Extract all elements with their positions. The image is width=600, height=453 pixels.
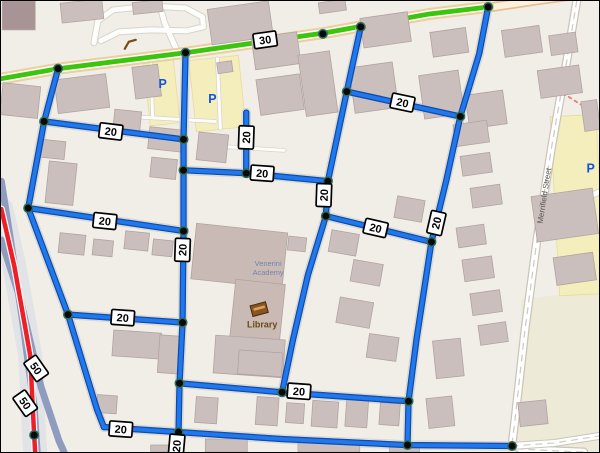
route-node[interactable] [508,442,517,451]
map-text-label: Academy [253,268,284,277]
speed-limit-badge[interactable]: 20 [363,218,389,238]
speed-limit-badge[interactable]: 20 [250,165,274,181]
route-node[interactable] [179,227,188,236]
svg-text:20: 20 [395,96,409,110]
svg-text:20: 20 [114,424,127,437]
route-node[interactable] [64,310,73,319]
speed-limit-badge[interactable]: 20 [390,93,416,112]
speed-limit-badge[interactable]: 20 [175,238,191,261]
speed-limit-badge[interactable]: 20 [238,126,254,149]
svg-text:20: 20 [256,168,269,181]
map-text-label: Venerini [255,259,282,268]
route-node[interactable] [322,212,331,221]
route-node[interactable] [319,30,328,39]
speed-limit-badge[interactable]: 20 [109,421,133,437]
svg-text:20: 20 [292,386,305,399]
route-node[interactable] [456,112,465,121]
route-node[interactable] [179,166,188,175]
speed-limit-badge[interactable]: 20 [287,383,311,399]
map-canvas[interactable]: 30202020202020202020202020205050Venerini… [1,1,599,452]
parking-icon: P [158,77,166,91]
parking-icon: P [587,162,595,176]
bench-decoration [125,40,136,49]
speed-limit-badge[interactable]: 20 [168,434,185,452]
svg-text:20: 20 [98,215,111,228]
svg-text:20: 20 [319,189,331,202]
route-node[interactable] [278,388,287,397]
svg-text:20: 20 [171,440,184,452]
speed-limit-badge[interactable]: 30 [253,31,278,49]
speed-limit-badge[interactable]: 20 [111,309,135,325]
route-node[interactable] [356,23,365,32]
speed-limit-badge[interactable]: 20 [93,212,117,229]
route-node[interactable] [179,135,188,144]
map-viewport[interactable]: 30202020202020202020202020205050Venerini… [0,0,600,453]
route-node[interactable] [24,204,33,213]
speed-limit-badge[interactable]: 20 [99,123,124,141]
ne-road [486,1,599,8]
map-text-label: Library [247,320,277,330]
svg-text:20: 20 [241,131,253,144]
route-node[interactable] [404,397,413,406]
svg-text:20: 20 [177,244,189,257]
route-node[interactable] [40,117,49,126]
route-node[interactable] [427,238,436,247]
route-node[interactable] [403,441,412,450]
speed-limit-badge[interactable]: 20 [316,183,332,206]
route-node[interactable] [484,3,493,12]
speed-limit-badge[interactable]: 20 [427,210,447,236]
route-node[interactable] [242,169,251,178]
parking-icon: P [208,92,216,106]
svg-text:20: 20 [104,126,118,139]
route-node[interactable] [181,48,190,57]
route-node[interactable] [178,318,187,327]
route-node[interactable] [54,64,63,73]
svg-text:20: 20 [116,312,129,325]
route-node[interactable] [30,431,39,440]
route-node[interactable] [175,379,184,388]
route-node[interactable] [343,87,352,96]
svg-text:30: 30 [258,34,272,48]
